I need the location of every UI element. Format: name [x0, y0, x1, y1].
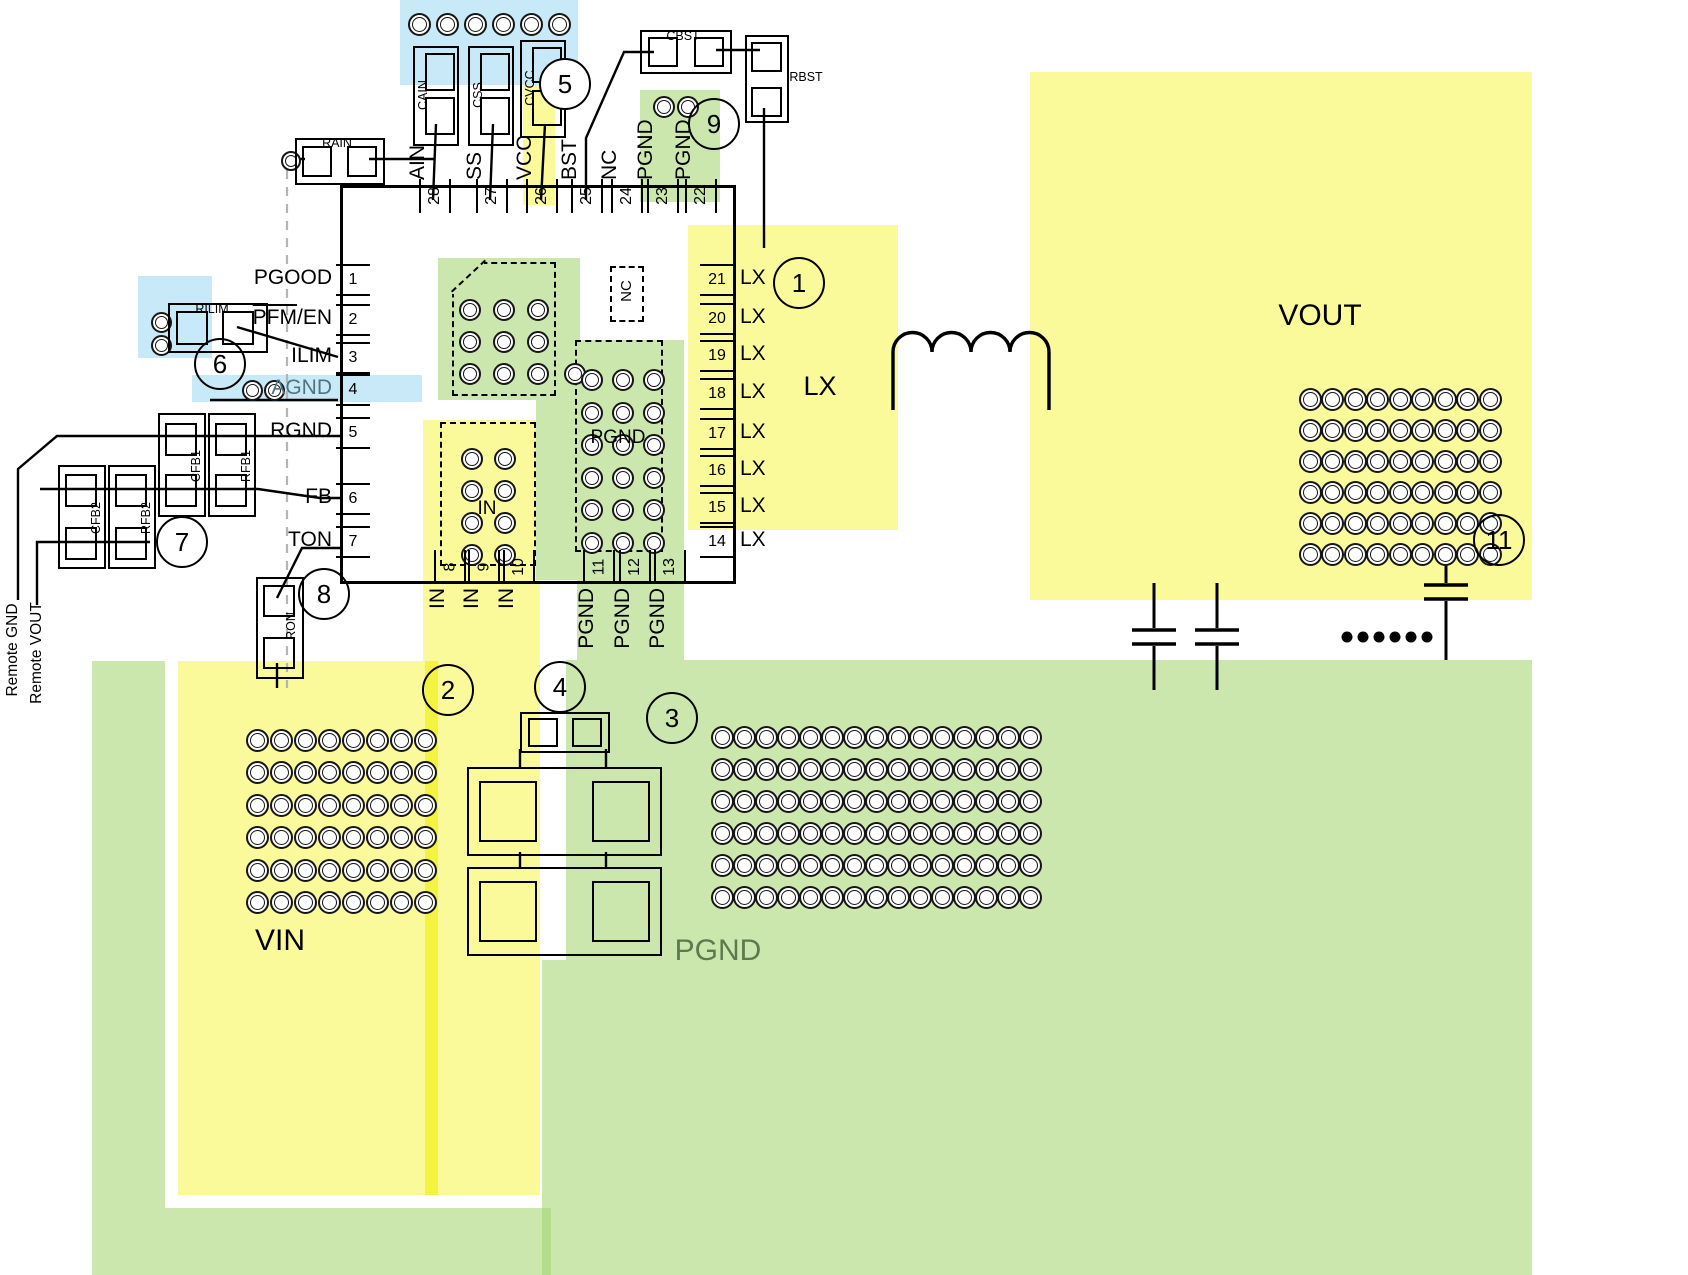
- pgnd-vias-via: [887, 886, 910, 909]
- cbst-label: CBST: [653, 29, 713, 43]
- pgnd-vias-via: [975, 822, 998, 845]
- vout-vias-via: [1299, 419, 1322, 442]
- pgnd-vias-via: [975, 886, 998, 909]
- cin-bulk-2-pad-1: [479, 881, 537, 942]
- vin-vias-via: [294, 891, 317, 914]
- pin-17-number: 17: [708, 425, 726, 443]
- vout-vias-via: [1389, 419, 1412, 442]
- vin-vias-via: [342, 859, 365, 882]
- pgnd-vias-via: [975, 790, 998, 813]
- pin-27-number: 27: [483, 187, 501, 205]
- vin-vias-via: [366, 826, 389, 849]
- pin-13-label: PGND: [646, 588, 670, 708]
- pgnd-vias-via: [997, 726, 1020, 749]
- vin-vias-via: [294, 761, 317, 784]
- pgnd-vias-via: [909, 790, 932, 813]
- pgnd-vias-via: [711, 886, 734, 909]
- pgnd-vias-via: [733, 886, 756, 909]
- vin-vias-via: [294, 859, 317, 882]
- remote-vout-label: Remote VOUT: [22, 573, 52, 733]
- vout-vias-via: [1389, 481, 1412, 504]
- vout-vias-via: [1321, 481, 1344, 504]
- pin-17-label: LX: [740, 418, 820, 446]
- pgnd-vias-via: [931, 822, 954, 845]
- pgnd-vias-via: [733, 726, 756, 749]
- pgnd-vias-via: [931, 854, 954, 877]
- pgnd-vias-via: [953, 886, 976, 909]
- vout-vias-via: [1389, 388, 1412, 411]
- pgnd-vias-via: [821, 726, 844, 749]
- pgnd-vias-via: [909, 758, 932, 781]
- pin-2: 2: [336, 304, 370, 336]
- vout-vias-via: [1299, 388, 1322, 411]
- pgnd-vias-via: [843, 886, 866, 909]
- vin-vias-via: [390, 729, 413, 752]
- vin-vias-via: [414, 891, 437, 914]
- ron-label: RON: [284, 596, 298, 656]
- pgnd-vias-via: [1019, 854, 1042, 877]
- blue-top-vias-via: [548, 13, 571, 36]
- cin-small-pad-2: [572, 718, 602, 747]
- vout-vias-via: [1456, 481, 1479, 504]
- pin-18: 18: [700, 378, 734, 410]
- pin-12: 12: [619, 550, 651, 584]
- pin-16-label: LX: [740, 455, 820, 483]
- pin-25: 25: [571, 179, 603, 213]
- pgnd-vias-via: [799, 790, 822, 813]
- vout-vias-via: [1434, 450, 1457, 473]
- vout-vias-via: [1344, 481, 1367, 504]
- pin-27-label: SS: [463, 60, 487, 180]
- vin-vias-via: [390, 826, 413, 849]
- vin-vias-via: [390, 761, 413, 784]
- pgnd-vias-via: [887, 726, 910, 749]
- pgnd-vias-via: [865, 886, 888, 909]
- vin-vias-via: [342, 794, 365, 817]
- pin-26-number: 26: [533, 187, 551, 205]
- vin-vias-via: [246, 794, 269, 817]
- pgnd-vias-via: [821, 886, 844, 909]
- callout-5: 5: [539, 58, 591, 110]
- vin-vias-via: [342, 729, 365, 752]
- pgnd-vias-via: [755, 758, 778, 781]
- vout-vias-via: [1321, 388, 1344, 411]
- rain-pad-2: [347, 146, 377, 177]
- pgnd-vias-via: [997, 758, 1020, 781]
- pgnd-vias-via: [975, 726, 998, 749]
- bottom-green-bar: [92, 1208, 560, 1275]
- pgnd-vias-via: [975, 758, 998, 781]
- pin-16-number: 16: [708, 462, 726, 480]
- vout-vias-via: [1299, 481, 1322, 504]
- vin-vias-via: [246, 729, 269, 752]
- pgnd-vias-via: [711, 758, 734, 781]
- pin-3-number: 3: [349, 349, 358, 367]
- pgnd-vias-via: [997, 822, 1020, 845]
- vout-vias-via: [1299, 450, 1322, 473]
- rain-pad-1: [302, 146, 332, 177]
- pin-25-number: 25: [578, 187, 596, 205]
- callout-3: 3: [646, 692, 698, 744]
- pgnd-vias-via: [865, 758, 888, 781]
- pgnd-vias-via: [1019, 886, 1042, 909]
- vout-vias-via: [1299, 543, 1322, 566]
- pin-5-label: RGND: [150, 417, 332, 445]
- ellipsis-dot: [1358, 632, 1369, 643]
- pgnd-vias-via: [953, 822, 976, 845]
- vout-vias-via: [1344, 419, 1367, 442]
- pin-11: 11: [583, 550, 615, 584]
- pin-13: 13: [654, 550, 686, 584]
- left-green-strip: [92, 661, 165, 1209]
- vout-vias-via: [1344, 543, 1367, 566]
- vout-vias-via: [1456, 450, 1479, 473]
- pgnd-vias-via: [821, 854, 844, 877]
- vin-vias-via: [366, 794, 389, 817]
- vin-vias-via: [318, 826, 341, 849]
- pin-2-label: PFM/EN: [150, 304, 332, 332]
- pgnd-vias-via: [1019, 758, 1042, 781]
- vout-vias-via: [1321, 543, 1344, 566]
- vin-vias-via: [414, 826, 437, 849]
- pgnd-vias-via: [865, 854, 888, 877]
- pgnd-vias-via: [799, 726, 822, 749]
- vin-vias-via: [318, 891, 341, 914]
- lx-label: LX: [740, 371, 900, 401]
- vout-vias-via: [1321, 450, 1344, 473]
- vout-vias-via: [1389, 543, 1412, 566]
- vout-vias-via: [1411, 481, 1434, 504]
- vin-vias-via: [270, 859, 293, 882]
- vin-vias-via: [366, 729, 389, 752]
- vin-vias-via: [246, 826, 269, 849]
- pin-6-label: FB: [150, 483, 332, 511]
- pin-26-label: VCC: [513, 60, 537, 180]
- pgnd-vias-via: [755, 726, 778, 749]
- pin-6: 6: [336, 483, 370, 515]
- pin-23: 23: [647, 179, 679, 213]
- vout-vias-via: [1434, 419, 1457, 442]
- pgnd-vias-via: [953, 790, 976, 813]
- pgnd-vias-via: [843, 790, 866, 813]
- callout-6: 6: [194, 338, 246, 390]
- vout-vias-via: [1434, 512, 1457, 535]
- pin-5-number: 5: [349, 424, 358, 442]
- vin-vias-via: [366, 891, 389, 914]
- vout-vias-via: [1389, 450, 1412, 473]
- pgnd-vias-via: [1019, 790, 1042, 813]
- pin-21: 21: [700, 264, 734, 296]
- vout-vias-via: [1344, 512, 1367, 535]
- vin-vias-via: [414, 794, 437, 817]
- vout-vias-via: [1411, 388, 1434, 411]
- pgnd-vias-via: [777, 822, 800, 845]
- cin-bulk-2-pad-2: [592, 881, 650, 942]
- vin-vias-via: [366, 761, 389, 784]
- pin-2-number: 2: [349, 311, 358, 329]
- vin-vias-via: [390, 859, 413, 882]
- pin-19-number: 19: [708, 347, 726, 365]
- pgnd-vias-via: [931, 886, 954, 909]
- pgnd-vias-via: [865, 822, 888, 845]
- callout-4: 4: [534, 661, 586, 713]
- pgnd-vias-via: [909, 822, 932, 845]
- pgnd-vias-via: [975, 854, 998, 877]
- pgnd-vias-via: [931, 726, 954, 749]
- vout-vias-via: [1366, 419, 1389, 442]
- vin-vias-via: [414, 859, 437, 882]
- pin-28-number: 28: [426, 187, 444, 205]
- cin-small-pad-1: [528, 718, 558, 747]
- ic-outline: [340, 185, 736, 584]
- nc-inner-label: NC: [611, 211, 641, 371]
- vin-vias-via: [270, 826, 293, 849]
- callout-8: 8: [298, 568, 350, 620]
- pin-12-number: 12: [626, 558, 644, 576]
- callout-9: 9: [688, 98, 740, 150]
- cfb2-label: CFB2: [89, 488, 103, 548]
- pgnd-vias-via: [887, 758, 910, 781]
- pgnd-vias-via: [799, 822, 822, 845]
- pin-27: 27: [476, 179, 508, 213]
- pgnd-vias-via: [733, 854, 756, 877]
- pin-1: 1: [336, 264, 370, 296]
- pin-10-number: 10: [510, 558, 528, 576]
- pin-24-number: 24: [618, 187, 636, 205]
- vout-vias-via: [1479, 388, 1502, 411]
- ellipsis-dot: [1342, 632, 1353, 643]
- pgnd-vias-via: [799, 854, 822, 877]
- pgnd-vias-via: [953, 758, 976, 781]
- vout-vias-via: [1411, 419, 1434, 442]
- pin-23-number: 23: [654, 187, 672, 205]
- callout-7: 7: [156, 516, 208, 568]
- vin-vias-via: [318, 859, 341, 882]
- vout-vias-via: [1366, 450, 1389, 473]
- pgnd-vias-via: [843, 854, 866, 877]
- pgnd-vias-via: [755, 854, 778, 877]
- vout-vias-via: [1344, 450, 1367, 473]
- rain-label: RAIN: [307, 136, 367, 150]
- vin-vias-via: [318, 761, 341, 784]
- pin-14-label: LX: [740, 526, 820, 554]
- vout-vias-via: [1411, 512, 1434, 535]
- vout-vias-via: [1366, 481, 1389, 504]
- vin-vias-via: [390, 891, 413, 914]
- pgnd-label: PGND: [638, 936, 798, 966]
- pin-22-number: 22: [692, 187, 710, 205]
- pin-1-label: PGOOD: [150, 264, 332, 292]
- vout-vias-via: [1479, 419, 1502, 442]
- pgnd-vias-via: [1019, 726, 1042, 749]
- pgnd-vias-via: [733, 790, 756, 813]
- pgnd-vias-via: [799, 758, 822, 781]
- vin-vias-via: [414, 729, 437, 752]
- ellipsis-dot: [1374, 632, 1385, 643]
- vin-vias-via: [294, 729, 317, 752]
- pgnd-vias-via: [777, 758, 800, 781]
- pin-13-number: 13: [661, 558, 679, 576]
- vin-vias-via: [342, 891, 365, 914]
- pin-15-label: LX: [740, 492, 820, 520]
- vin-vias-via: [318, 794, 341, 817]
- vout-vias-via: [1344, 388, 1367, 411]
- pgnd-vias-via: [799, 886, 822, 909]
- pgnd-inner-label: PGND: [538, 423, 698, 453]
- pin-9: 9: [468, 550, 500, 584]
- pin-17: 17: [700, 418, 734, 450]
- pin-19-label: LX: [740, 340, 820, 368]
- pin-12-label: PGND: [611, 588, 635, 708]
- vout-vias-via: [1479, 450, 1502, 473]
- pcb-layout-diagram: CAINCSSCVCCRAINCBSTRBSTRILIMCFB1RFB1CFB2…: [0, 0, 1688, 1275]
- blue-top-vias-via: [520, 13, 543, 36]
- vin-vias-via: [246, 761, 269, 784]
- pgnd-vias-via: [909, 854, 932, 877]
- blue-top-vias-via: [464, 13, 487, 36]
- pgnd-vias-via: [711, 726, 734, 749]
- pgnd-vias-via: [997, 886, 1020, 909]
- pgnd-vias-via: [821, 758, 844, 781]
- vout-vias-via: [1411, 450, 1434, 473]
- vout-vias-via: [1456, 419, 1479, 442]
- vout-vias-via: [1411, 543, 1434, 566]
- vin-vias-via: [270, 794, 293, 817]
- callout-1: 1: [773, 257, 825, 309]
- cin-bulk-1-pad-1: [479, 781, 537, 842]
- pgnd-vias-via: [755, 886, 778, 909]
- ellipsis-dot: [1390, 632, 1401, 643]
- pin-5: 5: [336, 417, 370, 449]
- pgnd-vias-via: [755, 790, 778, 813]
- pgnd-vias-via: [909, 726, 932, 749]
- pgnd-vias-via: [997, 790, 1020, 813]
- pgnd-vias-via: [777, 854, 800, 877]
- pin-10-label: IN: [495, 588, 519, 708]
- callout-2: 2: [422, 664, 474, 716]
- vin-vias-via: [270, 761, 293, 784]
- rbst-pad-1: [751, 42, 782, 72]
- pin-19: 19: [700, 340, 734, 372]
- vin-vias-via: [342, 761, 365, 784]
- pgnd-vias-via: [711, 854, 734, 877]
- plane-bar-seam: [542, 1208, 551, 1275]
- pgnd-vias-via: [821, 790, 844, 813]
- pgnd-vias-via: [865, 790, 888, 813]
- pin-24: 24: [611, 179, 643, 213]
- pgnd-vias-via: [843, 758, 866, 781]
- pgnd-vias-via: [953, 726, 976, 749]
- pgnd-vias-via: [777, 726, 800, 749]
- vin-vias-via: [390, 794, 413, 817]
- pin-16: 16: [700, 455, 734, 487]
- pin-14-number: 14: [708, 533, 726, 551]
- pgnd-vias-via: [1019, 822, 1042, 845]
- pgnd-vias-via: [733, 822, 756, 845]
- rbst-pad-2: [751, 87, 782, 117]
- pin-20-number: 20: [708, 310, 726, 328]
- pin-18-number: 18: [708, 385, 726, 403]
- pin-21-number: 21: [708, 271, 726, 289]
- pin-9-number: 9: [475, 563, 493, 572]
- pgnd-vias-via: [711, 790, 734, 813]
- pin-6-number: 6: [349, 490, 358, 508]
- vout-vias-via: [1479, 481, 1502, 504]
- vin-vias-via: [294, 794, 317, 817]
- pin-26: 26: [526, 179, 558, 213]
- pin-15-number: 15: [708, 499, 726, 517]
- rbst-label: RBST: [776, 70, 836, 84]
- pin-22: 22: [685, 179, 717, 213]
- pgnd-vias-via: [843, 822, 866, 845]
- ellipsis-dot: [1422, 632, 1433, 643]
- callout-11: 11: [1473, 514, 1525, 566]
- vout-vias-via: [1321, 512, 1344, 535]
- vout-vias-via: [1321, 419, 1344, 442]
- pgnd-vias-via: [843, 726, 866, 749]
- pin-8-number: 8: [441, 563, 459, 572]
- pgnd-vias-via: [821, 822, 844, 845]
- pin-1-number: 1: [349, 271, 358, 289]
- blue-top-vias-via: [492, 13, 515, 36]
- vin-vias-via: [270, 729, 293, 752]
- pgnd-vias-via: [887, 790, 910, 813]
- pgnd-vias-via: [953, 854, 976, 877]
- pgnd-vias-via: [887, 854, 910, 877]
- pgnd-vias-via: [931, 790, 954, 813]
- pgnd-vias-via: [777, 790, 800, 813]
- pin-7-number: 7: [349, 533, 358, 551]
- vout-vias-via: [1434, 388, 1457, 411]
- vout-label: VOUT: [1240, 301, 1400, 331]
- pin-4: 4: [336, 374, 370, 406]
- vout-vias-via: [1456, 388, 1479, 411]
- vout-vias-via: [1434, 543, 1457, 566]
- vin-vias-via: [294, 826, 317, 849]
- blue-top-vias-via: [408, 13, 431, 36]
- pin-3: 3: [336, 342, 370, 374]
- vout-vias-via: [1366, 543, 1389, 566]
- vout-vias-via: [1389, 512, 1412, 535]
- pin-4-number: 4: [349, 381, 358, 399]
- vin-vias-via: [246, 891, 269, 914]
- vout-vias-via: [1366, 512, 1389, 535]
- pgnd-vias-via: [887, 822, 910, 845]
- in-inner-label: IN: [407, 494, 567, 524]
- pgnd-vias-via: [777, 886, 800, 909]
- vin-label: VIN: [200, 926, 360, 956]
- pin-11-number: 11: [590, 559, 608, 576]
- ellipsis-dot: [1406, 632, 1417, 643]
- pin-10: 10: [503, 550, 535, 584]
- pgnd-vias-via: [733, 758, 756, 781]
- vout-vias-via: [1299, 512, 1322, 535]
- blue-top-vias-via: [436, 13, 459, 36]
- pgnd-vias-via: [755, 822, 778, 845]
- vin-vias-via: [246, 859, 269, 882]
- pin-15: 15: [700, 492, 734, 524]
- pgnd-vias-via: [865, 726, 888, 749]
- vin-vias-via: [366, 859, 389, 882]
- inductor-symbol: [893, 333, 1049, 410]
- pin-28-label: AIN: [406, 60, 430, 180]
- pgnd-vias-via: [909, 886, 932, 909]
- vin-vias-via: [342, 826, 365, 849]
- pin-23-label: PGND: [634, 60, 658, 180]
- pgnd-vias-via: [711, 822, 734, 845]
- cin-bulk-1-pad-2: [592, 781, 650, 842]
- vout-vias-via: [1434, 481, 1457, 504]
